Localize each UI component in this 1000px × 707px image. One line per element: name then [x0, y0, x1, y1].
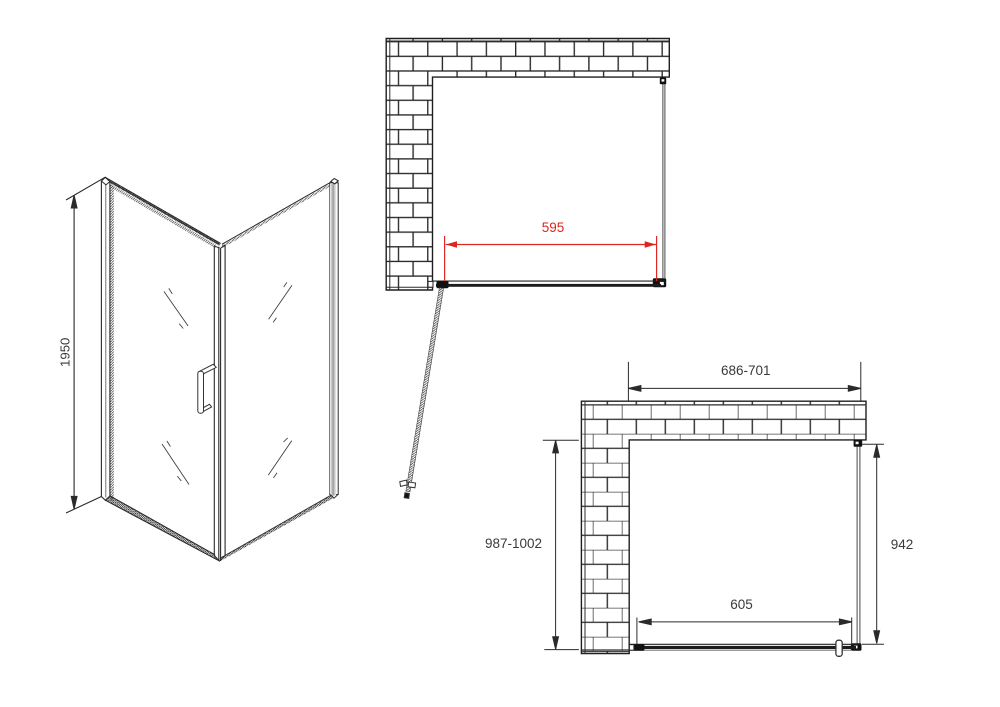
svg-text:1950: 1950	[58, 338, 73, 367]
svg-text:595: 595	[542, 220, 565, 235]
svg-text:942: 942	[891, 537, 914, 552]
svg-text:605: 605	[730, 597, 753, 612]
svg-text:686-701: 686-701	[721, 363, 771, 378]
svg-text:987-1002: 987-1002	[485, 536, 542, 551]
